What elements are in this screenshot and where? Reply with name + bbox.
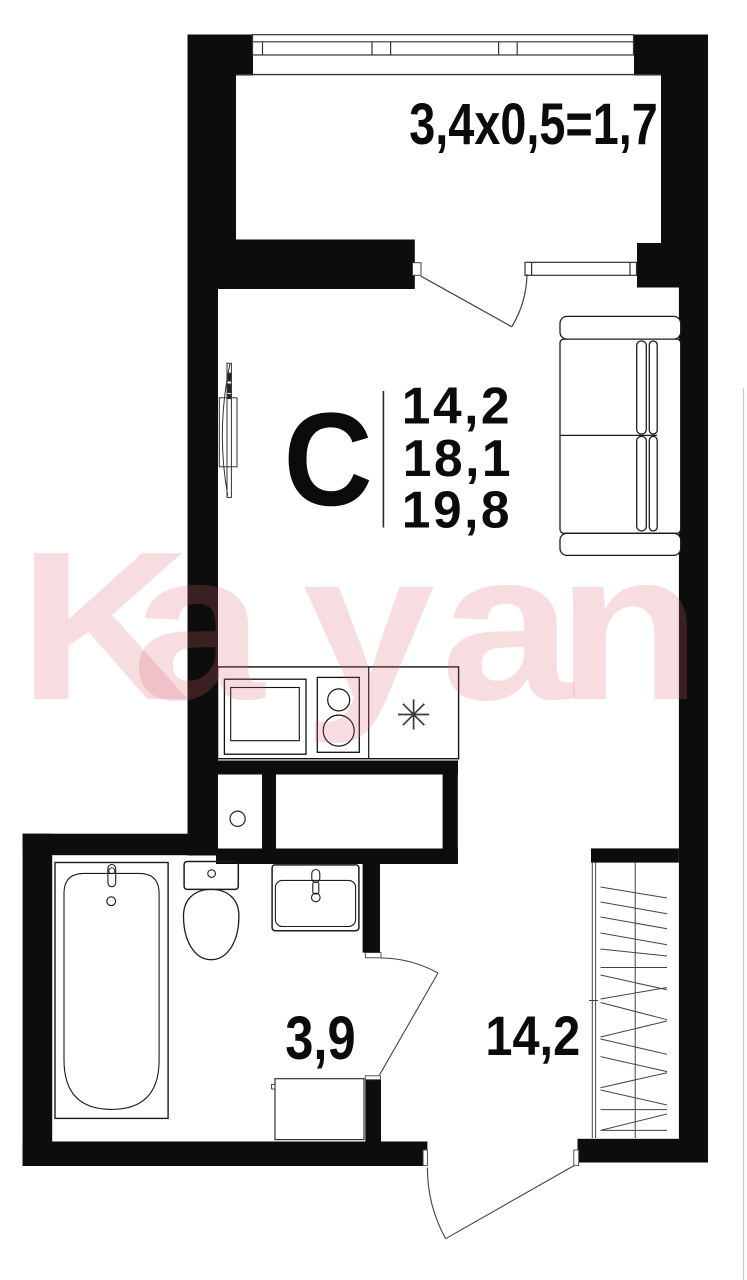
svg-text:3,9: 3,9 xyxy=(285,1003,355,1072)
svg-text:Kayan: Kayan xyxy=(18,507,701,744)
svg-text:14,2: 14,2 xyxy=(402,376,512,434)
svg-text:14,2: 14,2 xyxy=(485,1006,580,1068)
svg-text:3,4x0,5=1,7: 3,4x0,5=1,7 xyxy=(409,92,658,157)
svg-text:18,1: 18,1 xyxy=(403,429,513,487)
